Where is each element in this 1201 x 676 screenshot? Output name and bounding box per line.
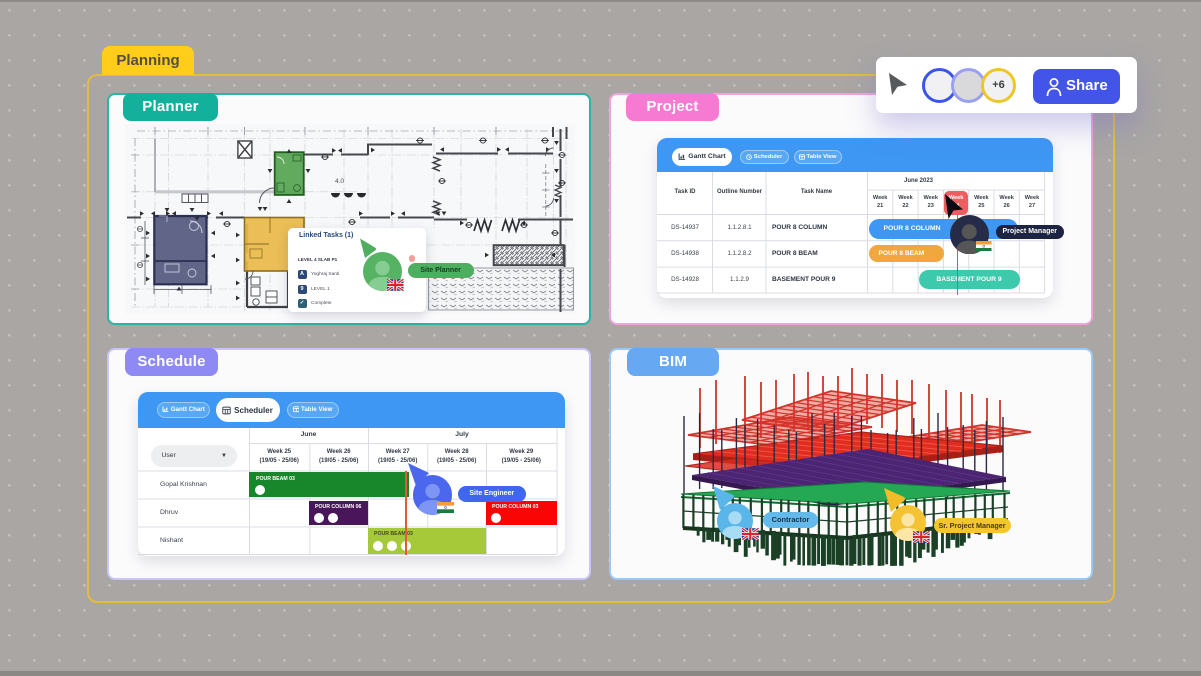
- svg-text:4.0: 4.0: [335, 178, 344, 185]
